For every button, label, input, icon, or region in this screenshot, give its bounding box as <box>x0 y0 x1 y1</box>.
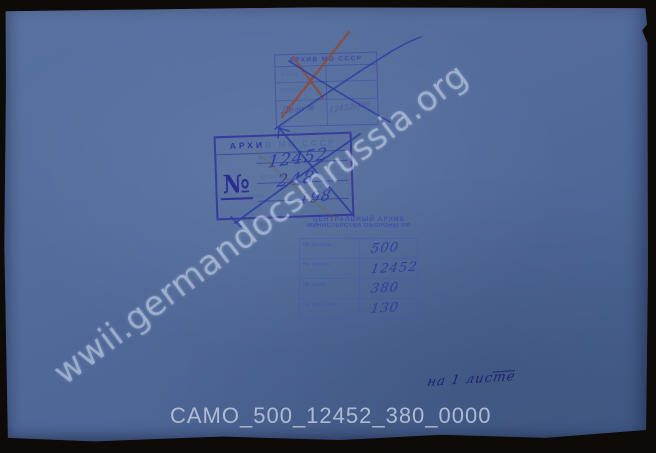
fond-number-label: № фонда <box>300 239 360 258</box>
film-number-label: № фильма <box>300 299 360 318</box>
fond-number-value: 500 <box>370 240 400 256</box>
table-row: № фильма 130 <box>300 299 417 318</box>
table-row: № фонда 500 <box>300 239 417 259</box>
stamp-header-visible: АРХИ <box>230 140 266 151</box>
camo-table: № фонда 500 № описи 12452 № дела 380 № ф… <box>299 238 418 319</box>
fond-label: ФОНД <box>281 72 299 78</box>
delo-handwritten-value: 12452/380 <box>329 99 371 114</box>
opis-label: ОПИСЬ <box>281 88 303 95</box>
table-row: № описи 12452 <box>300 259 417 279</box>
table-row: № дела 380 <box>300 279 417 299</box>
film-number-value: 130 <box>370 300 400 316</box>
stamp-archive-ussr-small: АРХИВ МО СССР ФОНД ОПИСЬ Дело № 12452/38… <box>274 52 379 128</box>
opis-number-label: № описи <box>300 259 360 278</box>
stamp-divider <box>325 66 328 125</box>
delo-number-label: № дела <box>300 279 360 298</box>
sheet-count-note: на 1 листе <box>426 369 517 390</box>
document-paper: АРХИВ МО СССР ФОНД ОПИСЬ Дело № 12452/38… <box>4 6 648 444</box>
camo-header-line1: ЦЕНТРАЛЬНЫЙ АРХИВ <box>296 216 422 223</box>
camo-header-line2: МИНИСТЕРСТВА ОБОРОНЫ РФ <box>296 223 422 230</box>
delo-label: Дело № <box>281 103 315 116</box>
archive-reference-caption: CAMO_500_12452_380_0000 <box>170 403 490 429</box>
sheet-count-text: на 1 листе <box>426 369 517 390</box>
delo-number-value: 380 <box>370 280 400 296</box>
opis-number-value: 12452 <box>369 260 418 277</box>
scanned-photo: АРХИВ МО СССР ФОНД ОПИСЬ Дело № 12452/38… <box>0 0 656 453</box>
stamp-camo-table: ЦЕНТРАЛЬНЫЙ АРХИВ МИНИСТЕРСТВА ОБОРОНЫ Р… <box>296 216 422 230</box>
